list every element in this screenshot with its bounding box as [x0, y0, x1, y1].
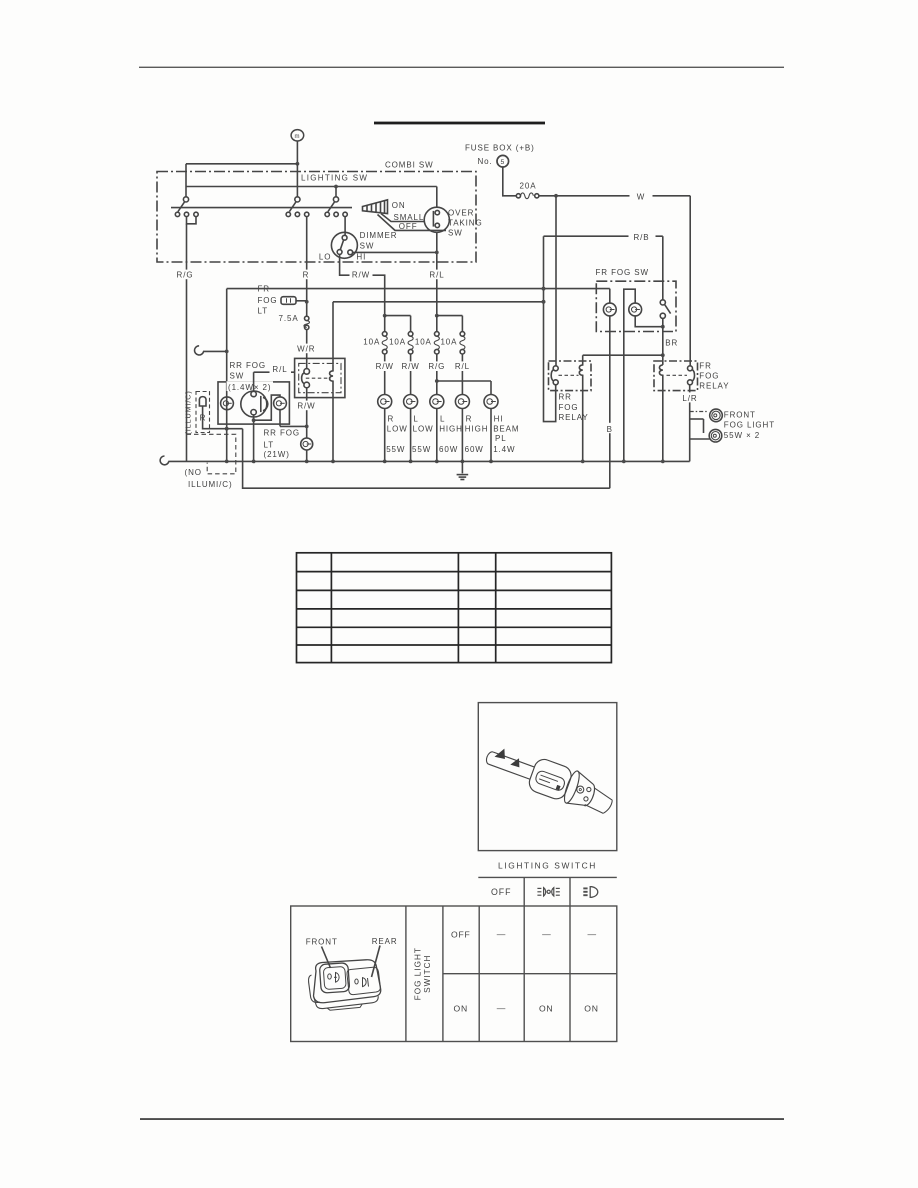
- svg-text:20A: 20A: [520, 181, 537, 190]
- svg-text:R/L: R/L: [455, 362, 470, 371]
- svg-text:HIGH: HIGH: [465, 424, 489, 433]
- svg-text:ON: ON: [454, 1003, 469, 1013]
- svg-text:BR: BR: [665, 338, 678, 347]
- svg-text:10A: 10A: [415, 338, 432, 347]
- svg-text:SW: SW: [360, 241, 375, 250]
- svg-text:R/L: R/L: [429, 270, 444, 279]
- svg-text:R/G: R/G: [428, 362, 445, 371]
- svg-text:PL: PL: [495, 434, 507, 443]
- svg-text:W: W: [637, 192, 645, 201]
- svg-text:—: —: [542, 929, 551, 939]
- svg-text:ON: ON: [392, 201, 406, 210]
- svg-text:LO: LO: [319, 252, 331, 261]
- svg-text:DIMMER: DIMMER: [360, 231, 398, 240]
- svg-text:OVER: OVER: [448, 208, 474, 217]
- svg-text:HIGH: HIGH: [439, 424, 463, 433]
- svg-text:W/R: W/R: [297, 344, 315, 353]
- svg-text:FUSE BOX (+B): FUSE BOX (+B): [465, 143, 535, 152]
- svg-text:B: B: [607, 425, 613, 434]
- svg-text:No.: No.: [478, 157, 493, 166]
- svg-text:SMALL: SMALL: [394, 213, 425, 222]
- svg-text:R/W: R/W: [297, 401, 315, 410]
- svg-text:R: R: [466, 415, 473, 424]
- svg-text:BEAM: BEAM: [493, 424, 519, 433]
- svg-text:R/G: R/G: [177, 270, 194, 279]
- svg-text:55W: 55W: [412, 445, 431, 454]
- svg-text:FOG: FOG: [258, 296, 278, 305]
- svg-text:COMBI SW: COMBI SW: [385, 161, 434, 170]
- svg-text:L/R: L/R: [682, 394, 697, 403]
- svg-text:SWITCH: SWITCH: [423, 955, 432, 993]
- svg-text:LT: LT: [258, 306, 269, 315]
- svg-text:m: m: [294, 134, 300, 140]
- svg-text:TAKING: TAKING: [448, 218, 483, 227]
- svg-text:(21W): (21W): [264, 450, 290, 459]
- svg-text:10A: 10A: [363, 338, 380, 347]
- svg-text:REAR: REAR: [372, 937, 398, 946]
- svg-text:R/B: R/B: [633, 233, 649, 242]
- svg-text:OFF: OFF: [399, 222, 418, 231]
- svg-text:LOW: LOW: [413, 424, 434, 433]
- svg-text:(ILLUMI/C): (ILLUMI/C): [184, 390, 193, 434]
- svg-text:FR FOG SW: FR FOG SW: [596, 268, 649, 277]
- svg-text:L: L: [413, 415, 418, 424]
- svg-text:OFF: OFF: [491, 887, 511, 897]
- svg-text:R/L: R/L: [272, 365, 287, 374]
- svg-text:1.4W: 1.4W: [493, 445, 515, 454]
- svg-text:(NO: (NO: [185, 468, 202, 477]
- svg-text:OFF: OFF: [451, 930, 471, 940]
- svg-text:FRONT: FRONT: [306, 938, 338, 947]
- svg-text:FOG: FOG: [559, 403, 579, 412]
- svg-text:RELAY: RELAY: [559, 413, 589, 422]
- svg-text:RELAY: RELAY: [699, 382, 729, 391]
- svg-text:LT: LT: [264, 441, 275, 450]
- svg-text:10A: 10A: [440, 338, 457, 347]
- svg-text:FOG LIGHT: FOG LIGHT: [413, 947, 422, 1000]
- svg-text:—: —: [497, 929, 506, 939]
- svg-text:L: L: [440, 415, 445, 424]
- svg-text:RR FOG: RR FOG: [230, 361, 267, 370]
- svg-text:FRONT: FRONT: [724, 411, 756, 420]
- svg-text:R: R: [303, 270, 310, 279]
- svg-text:—: —: [497, 1003, 506, 1013]
- svg-text:R/W: R/W: [376, 362, 394, 371]
- svg-text:60W: 60W: [439, 445, 458, 454]
- svg-text:ON: ON: [584, 1003, 599, 1013]
- svg-text:—: —: [587, 929, 596, 939]
- svg-text:SW: SW: [230, 371, 245, 380]
- svg-text:LIGHTING SWITCH: LIGHTING SWITCH: [498, 860, 597, 870]
- svg-text:7.5A: 7.5A: [279, 314, 299, 323]
- svg-text:5: 5: [500, 159, 505, 166]
- svg-text:SW: SW: [448, 229, 463, 238]
- svg-text:FOG LIGHT: FOG LIGHT: [724, 421, 775, 430]
- svg-text:RR FOG: RR FOG: [264, 429, 301, 438]
- svg-text:RR: RR: [559, 393, 572, 402]
- svg-text:R: R: [388, 415, 395, 424]
- svg-text:FOG: FOG: [699, 372, 719, 381]
- svg-text:10A: 10A: [389, 338, 406, 347]
- svg-text:55W × 2: 55W × 2: [724, 431, 760, 440]
- svg-text:R/W: R/W: [401, 362, 419, 371]
- svg-text:ON: ON: [539, 1003, 554, 1013]
- svg-text:ILLUMI/C): ILLUMI/C): [188, 480, 233, 489]
- svg-text:HI: HI: [356, 252, 366, 261]
- svg-text:LIGHTING SW: LIGHTING SW: [301, 173, 368, 182]
- svg-text:HI: HI: [494, 415, 504, 424]
- svg-text:R/W: R/W: [352, 270, 370, 279]
- svg-text:FR: FR: [699, 361, 711, 370]
- svg-text:60W: 60W: [465, 445, 484, 454]
- svg-text:(1.4W× 2): (1.4W× 2): [228, 383, 271, 392]
- svg-text:55W: 55W: [386, 445, 405, 454]
- svg-text:LOW: LOW: [387, 424, 408, 433]
